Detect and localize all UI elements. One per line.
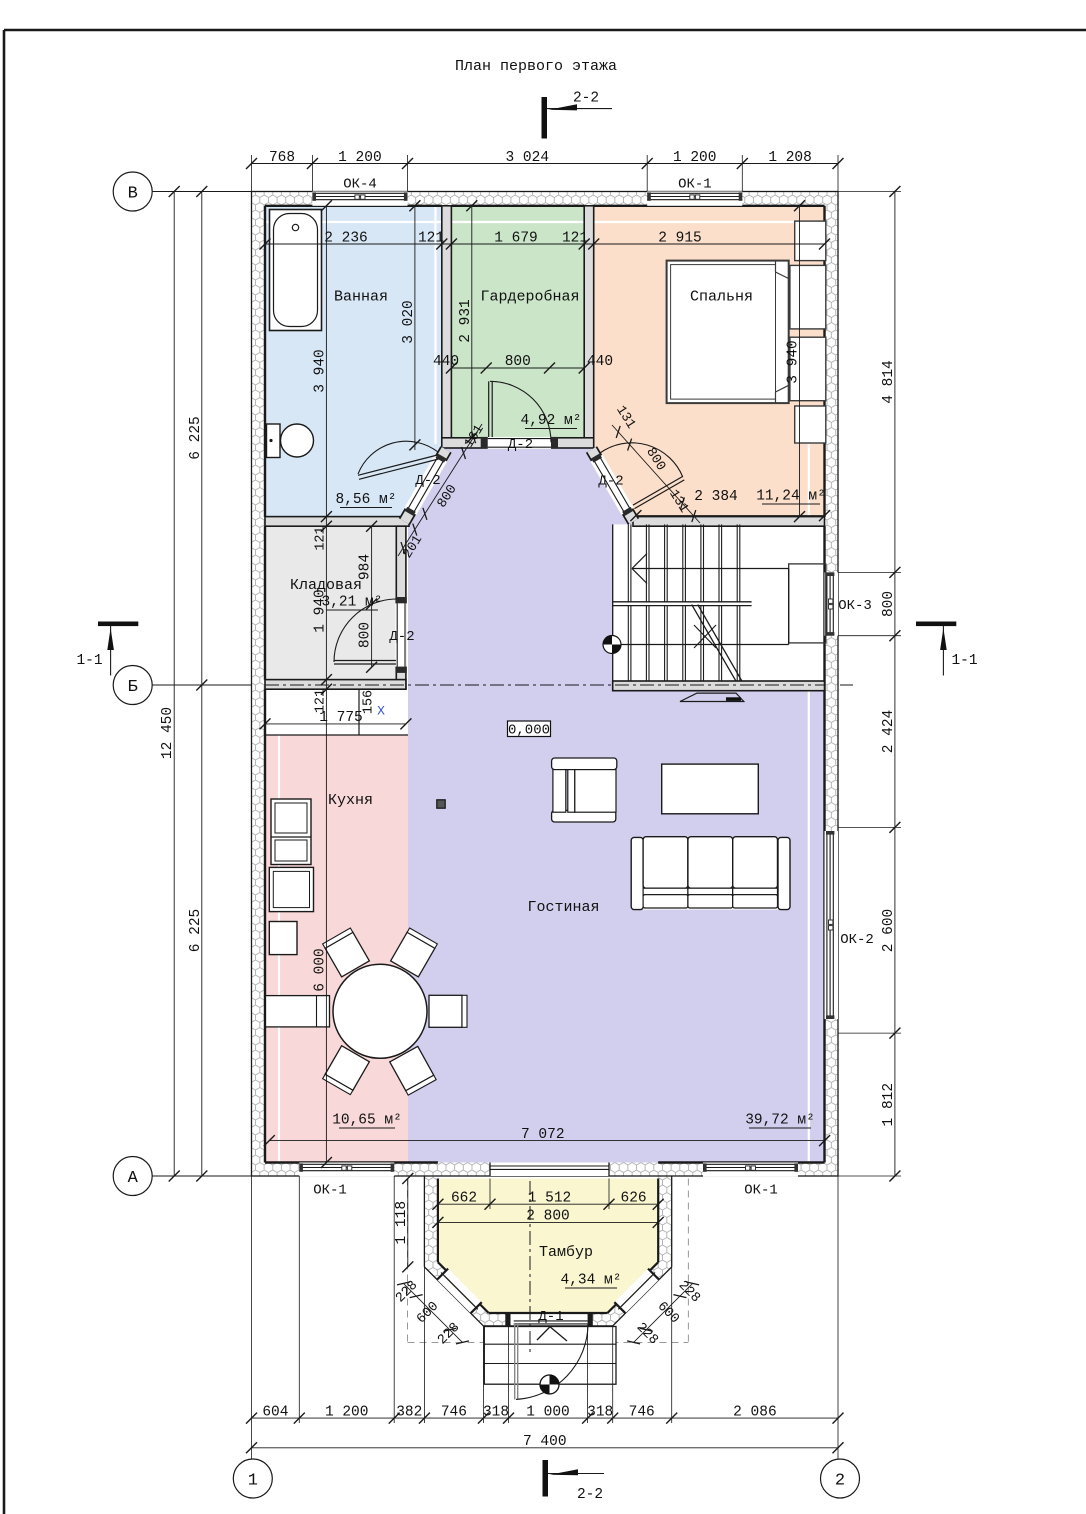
svg-text:Кладовая: Кладовая: [290, 577, 362, 594]
svg-text:2 424: 2 424: [881, 710, 897, 754]
svg-text:800: 800: [505, 354, 531, 370]
svg-text:3 940: 3 940: [312, 349, 328, 393]
svg-text:4,92 м²: 4,92 м²: [521, 413, 582, 429]
svg-text:2-2: 2-2: [573, 91, 599, 107]
svg-text:ОК-1: ОК-1: [678, 177, 712, 193]
svg-text:12 450: 12 450: [160, 707, 176, 759]
svg-text:4,34 м²: 4,34 м²: [561, 1273, 622, 1289]
svg-text:1 512: 1 512: [528, 1191, 572, 1207]
svg-text:2 800: 2 800: [526, 1209, 570, 1225]
svg-text:626: 626: [621, 1191, 647, 1207]
svg-text:1 208: 1 208: [768, 150, 812, 166]
svg-text:121: 121: [562, 230, 588, 246]
svg-text:6 225: 6 225: [188, 416, 204, 460]
svg-text:План первого этажа: План первого этажа: [455, 58, 617, 75]
svg-text:6 000: 6 000: [312, 948, 328, 992]
svg-text:7 072: 7 072: [521, 1127, 565, 1143]
svg-text:1 679: 1 679: [494, 230, 538, 246]
svg-text:800: 800: [881, 591, 897, 617]
svg-text:Д-2: Д-2: [389, 629, 414, 645]
svg-text:1: 1: [248, 1472, 258, 1491]
svg-text:1 000: 1 000: [526, 1404, 570, 1420]
svg-text:746: 746: [629, 1404, 655, 1420]
svg-text:1 118: 1 118: [394, 1201, 410, 1245]
svg-text:1-1: 1-1: [76, 653, 102, 669]
svg-text:440: 440: [587, 354, 613, 370]
svg-text:2 931: 2 931: [458, 299, 474, 343]
svg-text:318: 318: [587, 1404, 613, 1420]
svg-text:318: 318: [483, 1404, 509, 1420]
svg-text:1 200: 1 200: [338, 150, 382, 166]
svg-text:Б: Б: [128, 678, 138, 697]
svg-text:156: 156: [362, 690, 377, 714]
svg-text:ОК-3: ОК-3: [838, 598, 872, 614]
svg-text:8,56 м²: 8,56 м²: [336, 492, 397, 508]
svg-text:ОК-4: ОК-4: [343, 177, 377, 193]
svg-text:2-2: 2-2: [577, 1487, 603, 1503]
svg-text:2: 2: [835, 1472, 845, 1491]
svg-text:ОК-1: ОК-1: [744, 1183, 778, 1199]
svg-text:2 600: 2 600: [881, 909, 897, 953]
svg-text:1 200: 1 200: [325, 1404, 369, 1420]
svg-text:0,000: 0,000: [508, 723, 550, 739]
svg-text:ОК-1: ОК-1: [313, 1183, 347, 1199]
svg-text:440: 440: [433, 354, 459, 370]
svg-text:800: 800: [358, 622, 374, 648]
svg-text:Ванная: Ванная: [334, 289, 388, 306]
svg-text:1 775: 1 775: [319, 710, 363, 726]
svg-text:662: 662: [451, 1191, 477, 1207]
svg-text:6 225: 6 225: [188, 909, 204, 953]
svg-text:3,21 м²: 3,21 м²: [322, 595, 383, 611]
svg-text:7 400: 7 400: [523, 1434, 567, 1450]
svg-text:382: 382: [396, 1404, 422, 1420]
svg-text:746: 746: [441, 1404, 467, 1420]
svg-text:3 020: 3 020: [401, 300, 417, 344]
svg-text:Д-2: Д-2: [415, 473, 440, 489]
svg-text:11,24 м²: 11,24 м²: [756, 489, 826, 505]
svg-text:В: В: [128, 185, 138, 204]
svg-text:121: 121: [313, 526, 328, 550]
svg-text:Гостиная: Гостиная: [527, 899, 599, 916]
svg-text:3 024: 3 024: [506, 150, 550, 166]
svg-text:Д-2: Д-2: [508, 437, 533, 453]
svg-text:ОК-2: ОК-2: [840, 932, 874, 948]
svg-text:3 940: 3 940: [786, 340, 802, 384]
svg-text:А: А: [128, 1169, 139, 1188]
svg-text:604: 604: [262, 1404, 288, 1420]
svg-text:1-1: 1-1: [951, 653, 977, 669]
svg-text:2 915: 2 915: [658, 230, 702, 246]
svg-text:768: 768: [269, 150, 295, 166]
svg-text:X: X: [377, 704, 385, 719]
svg-text:Спальня: Спальня: [690, 288, 753, 305]
svg-text:4 814: 4 814: [881, 360, 897, 404]
svg-text:2 384: 2 384: [694, 489, 738, 505]
svg-text:Д-1: Д-1: [538, 1309, 563, 1325]
svg-text:1 200: 1 200: [673, 150, 717, 166]
svg-text:2 236: 2 236: [324, 230, 368, 246]
svg-text:10,65 м²: 10,65 м²: [332, 1113, 402, 1129]
svg-text:Тамбур: Тамбур: [539, 1244, 593, 1261]
svg-text:2 086: 2 086: [733, 1404, 777, 1420]
svg-text:Кухня: Кухня: [328, 792, 373, 809]
svg-text:Д-2: Д-2: [598, 474, 623, 490]
svg-text:39,72 м²: 39,72 м²: [745, 1113, 815, 1129]
svg-text:121: 121: [418, 230, 444, 246]
svg-text:1 812: 1 812: [881, 1083, 897, 1127]
svg-text:Гардеробная: Гардеробная: [480, 289, 579, 306]
